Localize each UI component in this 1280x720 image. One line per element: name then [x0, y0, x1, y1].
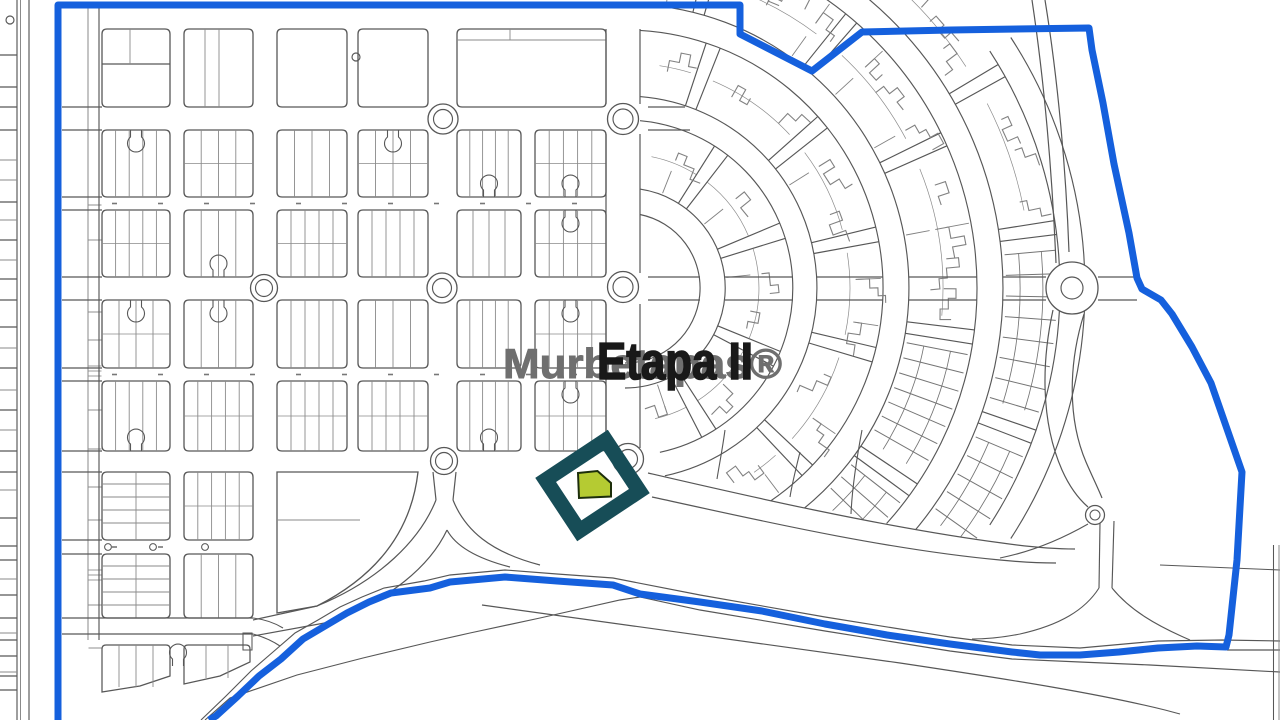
- svg-text:Etapa II: Etapa II: [597, 333, 753, 391]
